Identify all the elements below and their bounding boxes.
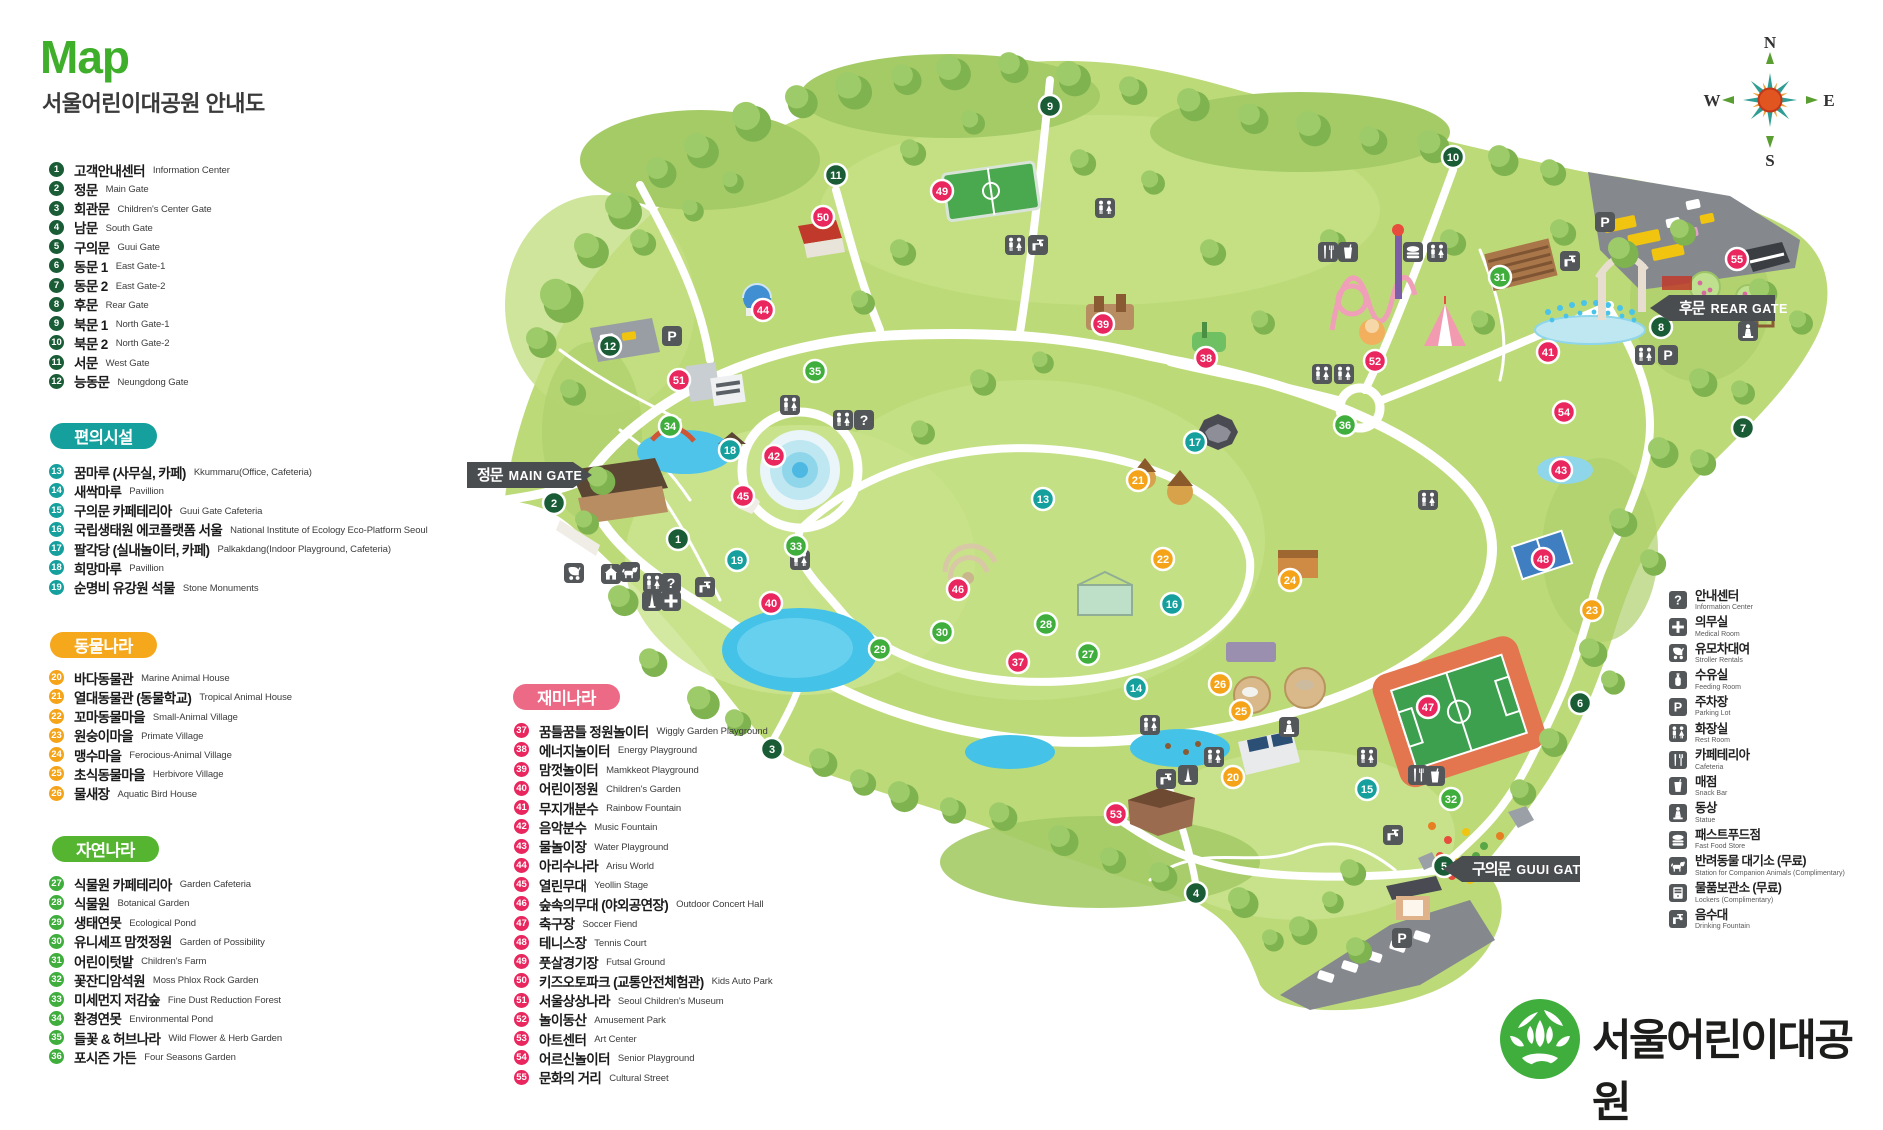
restroom-icon <box>1357 747 1377 767</box>
map-marker-14: 14 <box>1125 677 1147 699</box>
list-item: 26물새장Aquatic Bird House <box>49 784 292 803</box>
item-number: 1 <box>49 162 64 177</box>
item-label-en: Rear Gate <box>106 298 149 311</box>
svg-text:16: 16 <box>1166 599 1178 611</box>
item-label-en: Four Seasons Garden <box>144 1050 236 1063</box>
item-number: 35 <box>49 1030 64 1045</box>
list-item: 14새싹마루Pavillion <box>49 481 428 500</box>
legend-row: 물품보관소 (무료)Lockers (Complimentary) <box>1669 880 1845 907</box>
locker-icon <box>1669 884 1687 902</box>
svg-text:13: 13 <box>1037 494 1049 506</box>
item-label-en: North Gate-2 <box>116 336 170 349</box>
map-marker-13: 13 <box>1032 488 1054 510</box>
svg-text:45: 45 <box>737 491 749 503</box>
item-label-ko: 열대동물관 (동물학교) <box>74 687 191 707</box>
animal-list: 20바다동물관Marine Animal House21열대동물관 (동물학교)… <box>49 668 292 803</box>
map-marker-2: 2 <box>543 492 565 514</box>
compass-north: N <box>1764 33 1777 52</box>
item-number: 43 <box>514 839 529 854</box>
item-label-ko: 문화의 거리 <box>539 1067 601 1087</box>
legend-label-en: Parking Lot <box>1695 710 1730 717</box>
item-label-ko: 꼬마동물마을 <box>74 706 145 726</box>
item-label-ko: 북문 1 <box>74 314 108 334</box>
list-item: 5구의문Guui Gate <box>49 237 230 256</box>
item-number: 28 <box>49 895 64 910</box>
map-marker-43: 43 <box>1550 459 1572 481</box>
item-number: 15 <box>49 503 64 518</box>
map-marker-15: 15 <box>1356 778 1378 800</box>
item-label-ko: 서울상상나라 <box>539 990 610 1010</box>
restroom-icon <box>643 573 663 593</box>
cup-icon <box>1425 766 1445 786</box>
legend-label-en: Lockers (Complimentary) <box>1695 897 1781 904</box>
item-label-ko: 물놀이장 <box>539 836 586 856</box>
list-item: 49풋살경기장Futsal Ground <box>514 952 773 971</box>
item-label-ko: 서문 <box>74 352 98 372</box>
legend-label-en: Cafeteria <box>1695 764 1750 771</box>
map-marker-19: 19 <box>726 549 748 571</box>
item-label-ko: 포시즌 가든 <box>74 1047 136 1067</box>
item-label-en: National Institute of Ecology Eco-Platfo… <box>230 523 427 536</box>
item-label-ko: 후문 <box>74 294 98 314</box>
legend-row: 매점Snack Bar <box>1669 773 1845 800</box>
item-number: 10 <box>49 335 64 350</box>
legend-label-en: Information Center <box>1695 604 1753 611</box>
gate-label: 구의문GUUI GATE <box>1443 856 1589 882</box>
list-item: 19순명비 유강원 석물Stone Monuments <box>49 578 428 597</box>
map-marker-12: 12 <box>599 335 621 357</box>
list-item: 21열대동물관 (동물학교)Tropical Animal House <box>49 687 292 706</box>
map-marker-11: 11 <box>825 164 847 186</box>
faucet-icon <box>1156 769 1176 789</box>
burger-icon <box>1403 242 1423 262</box>
park-logo-text: 서울어린이대공원 <box>1592 1006 1883 1130</box>
map-marker-53: 53 <box>1105 803 1127 825</box>
item-number: 4 <box>49 220 64 235</box>
restroom-icon <box>1005 235 1025 255</box>
list-item: 10북문 2North Gate-2 <box>49 333 230 352</box>
obelisk-icon <box>1178 765 1198 785</box>
item-label-en: Yeollin Stage <box>594 878 648 891</box>
svg-text:42: 42 <box>768 451 780 463</box>
page-title: Map <box>40 30 129 84</box>
item-number: 24 <box>49 747 64 762</box>
list-item: 23원숭이마을Primate Village <box>49 726 292 745</box>
item-label-en: Art Center <box>594 1032 636 1045</box>
item-number: 49 <box>514 954 529 969</box>
svg-text:정문MAIN GATE: 정문MAIN GATE <box>477 466 582 484</box>
item-label-ko: 고객안내센터 <box>74 160 145 180</box>
item-label-en: Arisu World <box>606 859 654 872</box>
nature-list: 27식물원 카페테리아Garden Cafeteria28식물원Botanica… <box>49 874 282 1067</box>
legend-label-ko: 음수대 <box>1695 909 1750 922</box>
legend-row: 반려동물 대기소 (무료)Station for Companion Anima… <box>1669 853 1845 880</box>
item-label-ko: 초식동물마을 <box>74 764 145 784</box>
list-item: 17팔각당 (실내놀이터, 카페)Palkakdang(Indoor Playg… <box>49 539 428 558</box>
item-label-en: Outdoor Concert Hall <box>676 897 763 910</box>
svg-text:46: 46 <box>952 584 964 596</box>
item-number: 25 <box>49 766 64 781</box>
list-item: 25초식동물마을Herbivore Village <box>49 764 292 783</box>
p-icon <box>662 326 682 346</box>
list-item: 50키즈오토파크 (교통안전체험관)Kids Auto Park <box>514 971 773 990</box>
legend-label-ko: 동상 <box>1695 802 1717 815</box>
item-number: 6 <box>49 258 64 273</box>
item-number: 17 <box>49 541 64 556</box>
map-marker-28: 28 <box>1035 613 1057 635</box>
restroom-icon <box>1140 715 1160 735</box>
svg-text:51: 51 <box>673 375 685 387</box>
legend-label-ko: 의무실 <box>1695 616 1740 629</box>
map-marker-37: 37 <box>1007 651 1029 673</box>
list-item: 45열린무대Yeollin Stage <box>514 875 773 894</box>
item-label-ko: 어린이텃밭 <box>74 951 133 971</box>
list-item: 33미세먼지 저감숲Fine Dust Reduction Forest <box>49 990 282 1009</box>
list-item: 37꿈틀꿈틀 정원놀이터Wiggly Garden Playground <box>514 721 773 740</box>
map-marker-52: 52 <box>1364 350 1386 372</box>
list-item: 52놀이동산Amusement Park <box>514 1010 773 1029</box>
item-label-ko: 북문 2 <box>74 333 108 353</box>
restroom-icon <box>1669 724 1687 742</box>
map-marker-47: 47 <box>1417 696 1439 718</box>
restroom-icon <box>1635 345 1655 365</box>
item-label-ko: 순명비 유강원 석물 <box>74 577 175 597</box>
cup-icon <box>1338 242 1358 262</box>
svg-text:52: 52 <box>1369 356 1381 368</box>
item-label-en: Pavillion <box>129 484 163 497</box>
item-number: 22 <box>49 709 64 724</box>
list-item: 2정문Main Gate <box>49 179 230 198</box>
item-label-en: Kkummaru(Office, Cafeteria) <box>194 465 312 478</box>
item-label-ko: 숲속의무대 (야외공연장) <box>539 894 668 914</box>
list-item: 42음악분수Music Fountain <box>514 817 773 836</box>
list-item: 39맘껏놀이터Mamkkeot Playground <box>514 760 773 779</box>
map-marker-38: 38 <box>1195 347 1217 369</box>
item-label-ko: 꿈틀꿈틀 정원놀이터 <box>539 721 649 741</box>
map-marker-49: 49 <box>931 180 953 202</box>
svg-text:48: 48 <box>1537 554 1549 566</box>
legend-label-en: Station for Companion Animals (Complimen… <box>1695 870 1845 877</box>
item-label-en: Mamkkeot Playground <box>606 763 699 776</box>
svg-text:33: 33 <box>790 541 802 553</box>
item-label-en: Guui Gate Cafeteria <box>180 504 263 517</box>
map-marker-39: 39 <box>1092 313 1114 335</box>
item-label-en: Wild Flower & Herb Garden <box>168 1031 282 1044</box>
svg-text:14: 14 <box>1130 683 1143 695</box>
svg-text:31: 31 <box>1494 272 1506 284</box>
item-label-en: Soccer Fiend <box>582 917 637 930</box>
p-icon <box>1392 928 1412 948</box>
item-label-en: Fine Dust Reduction Forest <box>168 993 281 1006</box>
list-item: 9북문 1North Gate-1 <box>49 314 230 333</box>
item-label-ko: 희망마루 <box>74 558 121 578</box>
map-marker-29: 29 <box>869 638 891 660</box>
compass-east: E <box>1823 91 1834 110</box>
map-marker-21: 21 <box>1127 469 1149 491</box>
svg-text:44: 44 <box>757 305 770 317</box>
svg-text:37: 37 <box>1012 657 1024 669</box>
map-marker-27: 27 <box>1077 643 1099 665</box>
item-number: 9 <box>49 316 64 331</box>
legend-label-en: Medical Room <box>1695 631 1740 638</box>
item-label-en: Wiggly Garden Playground <box>657 724 768 737</box>
map-marker-46: 46 <box>947 578 969 600</box>
map-marker-22: 22 <box>1152 548 1174 570</box>
svg-text:22: 22 <box>1157 554 1169 566</box>
list-item: 41무지개분수Rainbow Fountain <box>514 798 773 817</box>
svg-text:40: 40 <box>765 598 777 610</box>
svg-text:4: 4 <box>1193 888 1200 900</box>
map-marker-6: 6 <box>1569 692 1591 714</box>
item-label-en: East Gate-2 <box>116 279 166 292</box>
legend-label-ko: 화장실 <box>1695 723 1730 736</box>
item-number: 2 <box>49 181 64 196</box>
faucet-icon <box>1383 825 1403 845</box>
map-marker-16: 16 <box>1161 593 1183 615</box>
list-item: 12능동문Neungdong Gate <box>49 372 230 391</box>
item-number: 7 <box>49 278 64 293</box>
item-label-en: Primate Village <box>141 729 203 742</box>
item-label-ko: 아트센터 <box>539 1029 586 1049</box>
item-label-ko: 꽃잔디암석원 <box>74 970 145 990</box>
svg-text:49: 49 <box>936 186 948 198</box>
svg-text:28: 28 <box>1040 619 1052 631</box>
item-number: 23 <box>49 728 64 743</box>
legend-label-ko: 물품보관소 (무료) <box>1695 882 1781 895</box>
svg-text:34: 34 <box>664 421 677 433</box>
item-number: 32 <box>49 972 64 987</box>
park-logo-icon <box>1492 992 1592 1092</box>
item-label-ko: 환경연못 <box>74 1008 121 1028</box>
item-number: 55 <box>514 1070 529 1085</box>
restroom-icon <box>1418 490 1438 510</box>
svg-text:20: 20 <box>1227 772 1239 784</box>
map-marker-55: 55 <box>1726 248 1748 270</box>
legend-label-en: Statue <box>1695 817 1717 824</box>
item-label-ko: 생태연못 <box>74 912 121 932</box>
map-marker-1: 1 <box>667 528 689 550</box>
map-marker-32: 32 <box>1440 788 1462 810</box>
list-item: 54어르신놀이터Senior Playground <box>514 1048 773 1067</box>
svg-text:27: 27 <box>1082 649 1094 661</box>
item-label-en: Amusement Park <box>594 1013 665 1026</box>
item-label-en: Pavillion <box>129 561 163 574</box>
legend-label-en: Snack Bar <box>1695 790 1727 797</box>
legend-label-en: Rest Room <box>1695 737 1730 744</box>
map-marker-9: 9 <box>1039 95 1061 117</box>
item-label-en: Palkakdang(Indoor Playground, Cafeteria) <box>217 542 390 555</box>
map-marker-48: 48 <box>1532 548 1554 570</box>
item-label-en: Children's Garden <box>606 782 681 795</box>
item-label-ko: 식물원 <box>74 893 109 913</box>
p-icon <box>1669 698 1687 716</box>
item-label-en: Garden of Possibility <box>180 935 265 948</box>
item-label-ko: 식물원 카페테리아 <box>74 874 172 894</box>
item-number: 21 <box>49 689 64 704</box>
item-label-ko: 키즈오토파크 (교통안전체험관) <box>539 971 704 991</box>
item-number: 11 <box>49 355 64 370</box>
restroom-icon <box>1095 198 1115 218</box>
map-marker-54: 54 <box>1553 401 1575 423</box>
legend-row: 카페테리아Cafeteria <box>1669 747 1845 774</box>
item-label-en: Marine Animal House <box>141 671 229 684</box>
svg-text:29: 29 <box>874 644 886 656</box>
page-subtitle: 서울어린이대공원 안내도 <box>42 86 265 118</box>
legend-row: 음수대Drinking Fountain <box>1669 906 1845 933</box>
map-marker-17: 17 <box>1184 431 1206 453</box>
legend-label-ko: 패스트푸드점 <box>1695 829 1760 842</box>
svg-text:21: 21 <box>1132 475 1144 487</box>
svg-text:36: 36 <box>1339 420 1351 432</box>
list-item: 34환경연못Environmental Pond <box>49 1009 282 1028</box>
item-label-en: Moss Phlox Rock Garden <box>153 973 259 986</box>
item-number: 48 <box>514 935 529 950</box>
item-label-en: East Gate-1 <box>116 259 166 272</box>
item-number: 29 <box>49 915 64 930</box>
list-item: 8후문Rear Gate <box>49 295 230 314</box>
map-marker-18: 18 <box>719 439 741 461</box>
map-marker-10: 10 <box>1442 146 1464 168</box>
item-label-ko: 동문 2 <box>74 275 108 295</box>
question-icon <box>661 573 681 593</box>
statue-icon <box>1738 321 1758 341</box>
gate-label: 후문REAR GATE <box>1650 295 1788 321</box>
item-number: 41 <box>514 800 529 815</box>
item-label-en: Seoul Children's Museum <box>618 994 724 1007</box>
restroom-icon <box>1312 364 1332 384</box>
map-marker-51: 51 <box>668 369 690 391</box>
list-item: 4남문South Gate <box>49 218 230 237</box>
gate-label: 정문MAIN GATE <box>467 462 592 488</box>
item-label-en: Main Gate <box>106 182 149 195</box>
map-marker-20: 20 <box>1222 766 1244 788</box>
list-item: 29생태연못Ecological Pond <box>49 913 282 932</box>
item-label-ko: 새싹마루 <box>74 481 121 501</box>
svg-text:24: 24 <box>1284 575 1297 587</box>
item-label-en: Stone Monuments <box>183 581 259 594</box>
map-marker-41: 41 <box>1537 341 1559 363</box>
item-label-ko: 구의문 카페테리아 <box>74 500 172 520</box>
list-item: 18희망마루Pavillion <box>49 558 428 577</box>
item-number: 54 <box>514 1050 529 1065</box>
item-label-ko: 팔각당 (실내놀이터, 카페) <box>74 539 209 559</box>
item-label-ko: 열린무대 <box>539 875 586 895</box>
item-label-ko: 음악분수 <box>539 817 586 837</box>
item-label-en: South Gate <box>106 221 153 234</box>
legend-row: 동상Statue <box>1669 800 1845 827</box>
restroom-icon <box>780 395 800 415</box>
item-number: 5 <box>49 239 64 254</box>
item-label-ko: 에너지놀이터 <box>539 740 610 760</box>
list-item: 36포시즌 가든Four Seasons Garden <box>49 1047 282 1066</box>
list-item: 31어린이텃밭Children's Farm <box>49 951 282 970</box>
dog-icon <box>1669 857 1687 875</box>
svg-text:7: 7 <box>1740 423 1746 435</box>
map-marker-24: 24 <box>1279 569 1301 591</box>
item-number: 45 <box>514 877 529 892</box>
svg-text:41: 41 <box>1542 347 1554 359</box>
item-label-ko: 능동문 <box>74 371 109 391</box>
item-label-en: Futsal Ground <box>606 955 665 968</box>
svg-text:9: 9 <box>1047 101 1053 113</box>
item-label-ko: 회관문 <box>74 198 109 218</box>
list-item: 7동문 2East Gate-2 <box>49 276 230 295</box>
map-marker-36: 36 <box>1334 414 1356 436</box>
item-label-ko: 아리수나라 <box>539 855 598 875</box>
list-item: 47축구장Soccer Fiend <box>514 914 773 933</box>
list-item: 35들꽃 & 허브나라Wild Flower & Herb Garden <box>49 1028 282 1047</box>
item-label-en: Small-Animal Village <box>153 710 238 723</box>
svg-text:19: 19 <box>731 555 743 567</box>
restroom-icon <box>1427 242 1447 262</box>
item-number: 40 <box>514 781 529 796</box>
p-icon <box>1658 345 1678 365</box>
music-fountain <box>760 430 840 510</box>
map-marker-40: 40 <box>760 592 782 614</box>
item-label-ko: 원숭이마을 <box>74 725 133 745</box>
list-item: 1고객안내센터Information Center <box>49 160 230 179</box>
obelisk-icon <box>642 591 662 611</box>
legend-label-ko: 유모차대여 <box>1695 643 1750 656</box>
item-label-en: Energy Playground <box>618 743 697 756</box>
question-icon <box>1669 591 1687 609</box>
faucet-icon <box>1669 910 1687 928</box>
section-pill-convenience: 편의시설 <box>50 423 157 449</box>
item-label-ko: 풋살경기장 <box>539 952 598 972</box>
statue-icon <box>1279 717 1299 737</box>
utensils-icon <box>1669 751 1687 769</box>
item-label-ko: 유니세프 맘껏정원 <box>74 931 172 951</box>
item-label-ko: 동문 1 <box>74 256 108 276</box>
map-marker-23: 23 <box>1581 599 1603 621</box>
item-label-en: Kids Auto Park <box>712 974 773 987</box>
item-number: 8 <box>49 297 64 312</box>
item-label-ko: 축구장 <box>539 913 574 933</box>
list-item: 6동문 1East Gate-1 <box>49 256 230 275</box>
fun-list: 37꿈틀꿈틀 정원놀이터Wiggly Garden Playground38에너… <box>514 721 773 1087</box>
list-item: 48테니스장Tennis Court <box>514 933 773 952</box>
list-item: 30유니세프 맘껏정원Garden of Possibility <box>49 932 282 951</box>
svg-text:후문REAR GATE: 후문REAR GATE <box>1679 300 1788 317</box>
legend-row: 수유실Feeding Room <box>1669 667 1845 694</box>
legend-row: 패스트푸드점Fast Food Store <box>1669 826 1845 853</box>
cup-icon <box>1669 777 1687 795</box>
legend-row: 주차장Parking Lot <box>1669 693 1845 720</box>
map-marker-33: 33 <box>785 535 807 557</box>
item-number: 42 <box>514 819 529 834</box>
svg-text:1: 1 <box>675 534 681 546</box>
svg-text:47: 47 <box>1422 702 1434 714</box>
list-item: 13꿈마루 (사무실, 카페)Kkummaru(Office, Cafeteri… <box>49 462 428 481</box>
item-label-en: Garden Cafeteria <box>180 877 251 890</box>
svg-text:32: 32 <box>1445 794 1457 806</box>
list-item: 51서울상상나라Seoul Children's Museum <box>514 991 773 1010</box>
item-label-ko: 바다동물관 <box>74 668 133 688</box>
svg-text:35: 35 <box>809 366 821 378</box>
item-label-ko: 놀이동산 <box>539 1009 586 1029</box>
map-marker-31: 31 <box>1489 266 1511 288</box>
p-icon <box>1595 212 1615 232</box>
item-label-ko: 국립생태원 에코플랫폼 서울 <box>74 519 222 539</box>
svg-text:6: 6 <box>1577 698 1583 710</box>
svg-text:38: 38 <box>1200 353 1212 365</box>
map-marker-26: 26 <box>1209 673 1231 695</box>
legend-label-en: Fast Food Store <box>1695 843 1760 850</box>
list-item: 55문화의 거리Cultural Street <box>514 1068 773 1087</box>
item-label-en: Senior Playground <box>618 1051 694 1064</box>
item-number: 27 <box>49 876 64 891</box>
item-number: 13 <box>49 464 64 479</box>
